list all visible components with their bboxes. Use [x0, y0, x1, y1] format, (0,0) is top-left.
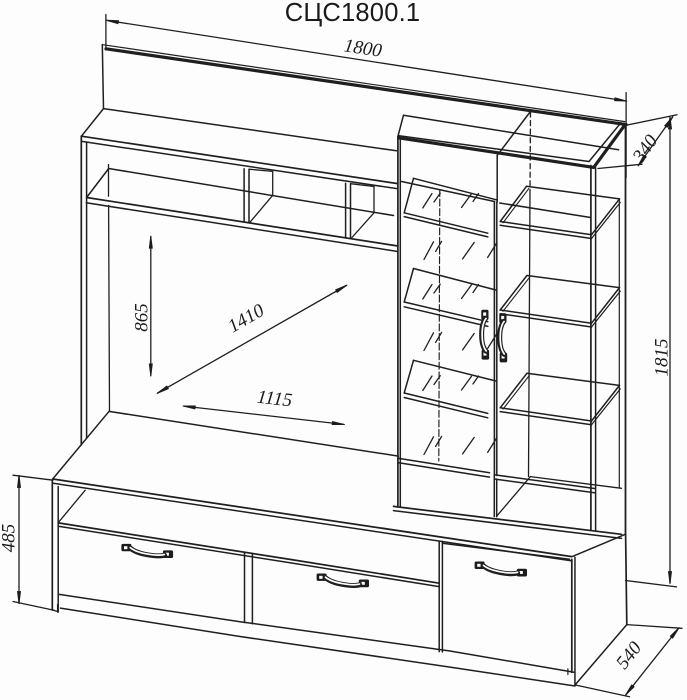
svg-text:865: 865 — [132, 303, 153, 332]
svg-text:1115: 1115 — [256, 387, 293, 412]
svg-text:СЦС1800.1: СЦС1800.1 — [285, 0, 421, 27]
svg-text:340: 340 — [628, 131, 662, 168]
svg-text:1815: 1815 — [652, 339, 673, 377]
svg-text:540: 540 — [612, 638, 646, 674]
svg-text:1410: 1410 — [225, 300, 269, 337]
svg-text:485: 485 — [0, 524, 20, 553]
